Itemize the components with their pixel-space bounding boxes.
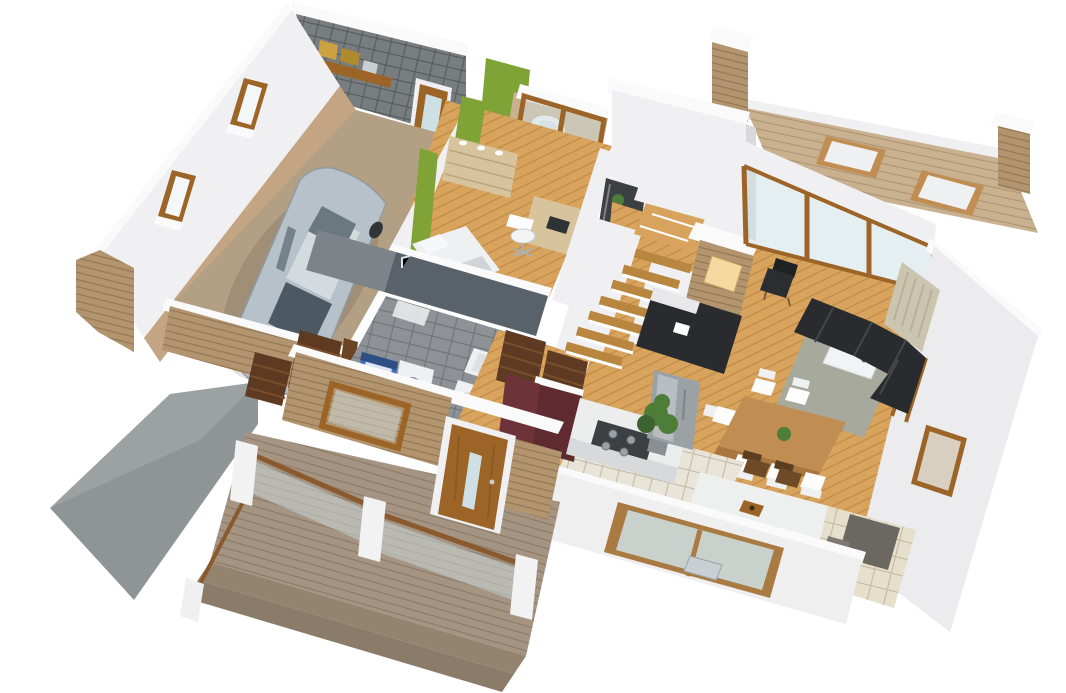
- burner: [620, 448, 628, 456]
- burner: [627, 436, 635, 444]
- terrace-stone-pillar-texture: [998, 126, 1030, 194]
- tray-item: [750, 506, 755, 511]
- floor-plan-render: [0, 0, 1066, 693]
- decor-dish: [459, 141, 467, 146]
- chair-seat: [511, 229, 535, 243]
- burner: [609, 430, 617, 438]
- railing-post: [180, 578, 204, 622]
- decor-dish: [477, 146, 485, 151]
- burner: [602, 442, 610, 450]
- floor-plan-canvas: [0, 0, 1066, 693]
- door-handle: [490, 480, 495, 485]
- decor-dish: [495, 151, 503, 156]
- plant-centerpiece: [777, 427, 791, 441]
- west-stone-corner: [76, 250, 134, 352]
